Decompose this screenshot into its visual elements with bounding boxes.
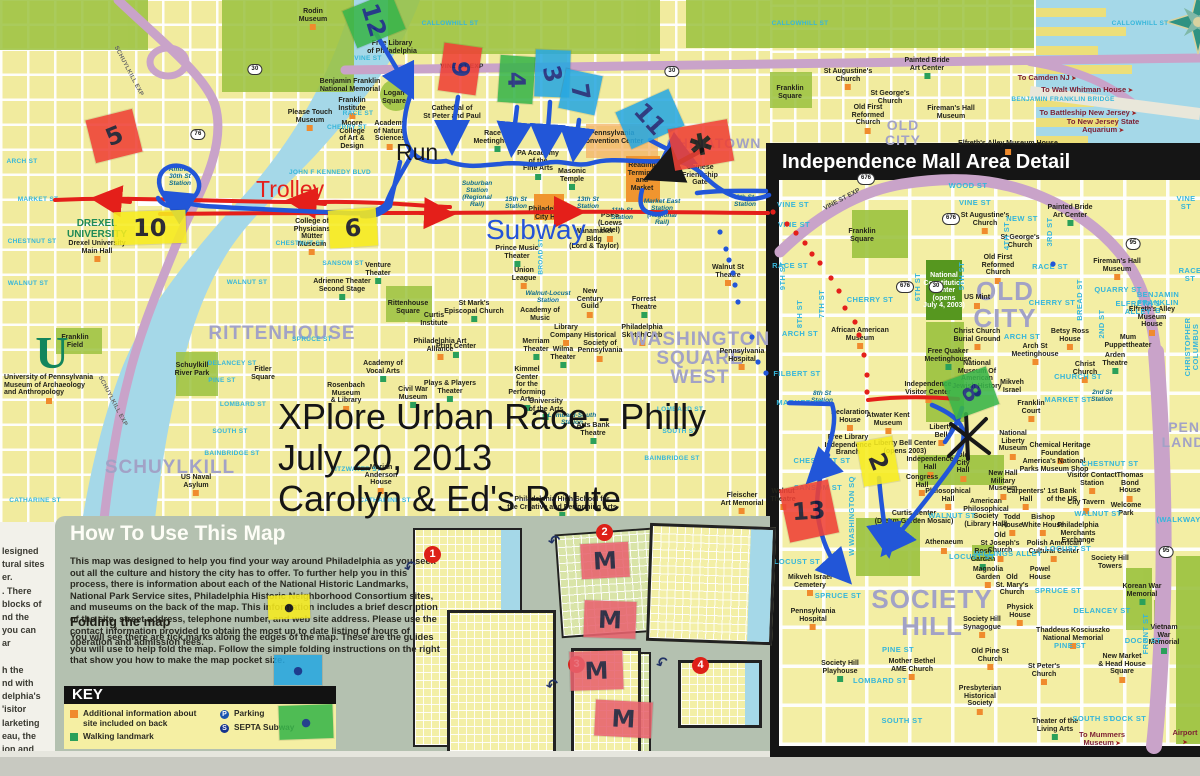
folding-heading: Folding the map	[70, 614, 170, 629]
run-label: Run	[396, 139, 438, 166]
sticky-number: M	[592, 546, 617, 575]
sticky-number: ●	[293, 664, 303, 677]
sticky-note: 9	[438, 43, 482, 96]
sticky-number: 12	[356, 0, 393, 40]
legend-square-icon	[70, 710, 78, 718]
sticky-number: M	[584, 656, 609, 685]
main-map-street-grid-right	[770, 0, 1200, 145]
sticky-note: ●	[278, 704, 333, 740]
thumb-river	[745, 663, 759, 725]
legend-circle-icon: S	[220, 724, 229, 733]
sticky-note: 4	[497, 55, 535, 104]
key-heading: KEY	[64, 686, 336, 704]
sticky-number: ✱	[686, 126, 717, 165]
sticky-note: ●	[268, 594, 311, 619]
sticky-note: M	[580, 542, 630, 579]
fold-step-number: 4	[692, 657, 709, 674]
scan-table-edge	[0, 757, 1200, 776]
trolley-label: Trolley	[256, 176, 324, 203]
sticky-number: 6	[344, 213, 363, 242]
key-item: Walking landmark	[70, 732, 210, 742]
fold-step4-map	[678, 660, 762, 728]
sticky-note: M	[583, 600, 636, 639]
thumb-river	[747, 529, 772, 642]
key-left-column: Additional information about site includ…	[70, 709, 210, 742]
subway-label: Subway	[486, 214, 586, 246]
sticky-number: 4	[502, 71, 530, 88]
fold-arrow-icon: ↶	[547, 531, 563, 551]
fold-step1-map-inner	[447, 610, 556, 754]
sticky-number: 8	[955, 379, 988, 407]
sticky-number: ●	[301, 715, 311, 728]
sticky-note: 13	[779, 479, 839, 542]
sticky-number: M	[611, 704, 636, 733]
sticky-number: 13	[791, 496, 826, 526]
sticky-note: M	[569, 650, 623, 691]
inset-title: Independence Mall Area Detail	[782, 150, 1142, 174]
sticky-number: 5	[101, 120, 127, 152]
inset-map-detail	[779, 180, 1200, 746]
key-item: Additional information about site includ…	[70, 709, 210, 728]
legend-circle-icon: P	[220, 710, 229, 719]
legend-square-icon	[70, 733, 78, 741]
clipped-text-column: lesigned tural sites er. . There blocks …	[2, 545, 50, 756]
scanned-map-page: Independence Mall Area Detail Rodin Muse…	[0, 0, 1200, 776]
fold-step-number: 1	[424, 546, 441, 563]
sticky-number: ●	[284, 600, 294, 613]
sticky-note: ●	[274, 655, 322, 685]
sticky-number: M	[598, 605, 623, 634]
sticky-note: 6	[328, 207, 379, 248]
sticky-note: M	[594, 700, 653, 739]
sticky-number: 2	[862, 449, 894, 475]
sticky-number: 7	[565, 82, 595, 102]
race-title-overlay: XPlore Urban Race - Philly July 20, 2013…	[278, 396, 706, 519]
howto-heading: How To Use This Map	[70, 522, 285, 546]
sticky-number: 10	[133, 214, 166, 242]
folding-paragraph: You will see there are tick marks along …	[70, 632, 448, 667]
sticky-note: 10	[113, 210, 186, 245]
sticky-number: 9	[446, 60, 475, 78]
fold-step2-map-right	[646, 523, 776, 645]
fold-step-number: 2	[596, 524, 613, 541]
sticky-note: 2	[856, 436, 899, 487]
